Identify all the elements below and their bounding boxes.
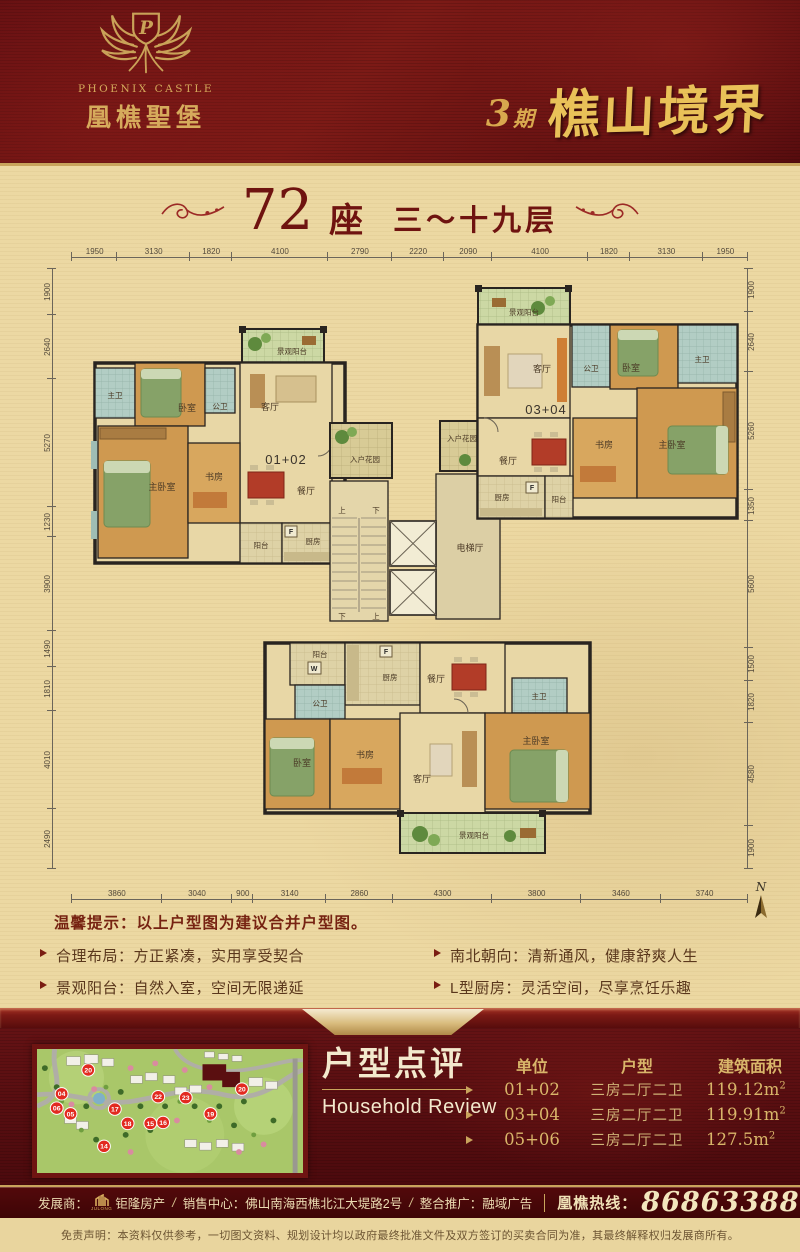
room-label-view-balcony: 景观阳台 bbox=[277, 346, 307, 356]
dim-seg: 2490 bbox=[40, 809, 56, 869]
main-area: 72 座 三～十九层 1950 3130 1820 4100 2790 2220… bbox=[0, 169, 800, 1008]
site-marker: 04 bbox=[55, 1088, 68, 1100]
hotline-number: 86863388 bbox=[641, 1187, 799, 1218]
dim-seg: 2090 bbox=[444, 245, 493, 261]
cell-layout: 三房二厅二卫 bbox=[574, 1104, 700, 1125]
unit-id-01-02: 01+02 bbox=[265, 452, 307, 467]
header-area: 建筑面积 bbox=[700, 1053, 800, 1077]
site-marker: 20 bbox=[82, 1064, 95, 1076]
floors-range: 三～十九层 bbox=[393, 183, 558, 239]
dim-label: 1810 bbox=[44, 681, 52, 699]
dim-seg: 3800 bbox=[492, 887, 580, 903]
dim-label: 2640 bbox=[44, 338, 52, 356]
room-label-kitchen: 厨房 bbox=[306, 536, 321, 546]
bullet-arrow-icon bbox=[434, 949, 441, 957]
svg-text:20: 20 bbox=[84, 1067, 92, 1074]
dim-label: 1900 bbox=[748, 282, 756, 300]
disclaimer-text: 免责声明：本资料仅供参考，一切图文资料、规划设计均以政府最终批准文件及双方签订的… bbox=[0, 1218, 800, 1252]
dim-seg: 4100 bbox=[492, 245, 587, 261]
review-section: 20 04 06 05 17 14 18 15 16 22 23 19 20 户… bbox=[0, 1028, 800, 1185]
dim-label: 1350 bbox=[748, 497, 756, 515]
dim-seg: 2640 bbox=[744, 312, 760, 372]
project-name: 樵山境界 bbox=[546, 67, 769, 148]
dim-seg: 900 bbox=[232, 887, 253, 903]
svg-text:04: 04 bbox=[58, 1091, 66, 1098]
dim-label: 3460 bbox=[612, 890, 630, 903]
bullet-arrow-icon bbox=[434, 981, 441, 989]
floor-plan-svg: 景观阳台 主卫 卧室 公卫 客厅 01+02 餐厅 主 bbox=[80, 276, 740, 871]
unit-id-03-04: 03+04 bbox=[525, 402, 567, 417]
bullet-arrow-icon bbox=[40, 949, 47, 957]
tip-item: 景观阳台：自然入室，空间无限递延 bbox=[40, 977, 370, 998]
room-label-living: 客厅 bbox=[533, 363, 551, 374]
hotline-label: 凰樵热线： bbox=[557, 1192, 637, 1213]
room-label-study: 书房 bbox=[595, 439, 613, 450]
review-table-row: 05+06 三房二厅二卫 127.5m2 bbox=[466, 1127, 800, 1152]
tip-text: 南北朝向：清新通风，健康舒爽人生 bbox=[450, 945, 698, 966]
dim-seg: 3130 bbox=[630, 245, 703, 261]
dim-label: 3130 bbox=[145, 248, 163, 261]
dim-label: 1900 bbox=[748, 839, 756, 857]
project-title-block: 3期 樵山境界 bbox=[486, 70, 768, 145]
stairs-up-label: 上 bbox=[338, 506, 346, 515]
dim-label: 2790 bbox=[351, 248, 369, 261]
svg-text:06: 06 bbox=[53, 1106, 61, 1113]
dim-seg: 3900 bbox=[40, 537, 56, 632]
room-label-balcony: 阳台 bbox=[254, 540, 269, 550]
divider-band bbox=[0, 1008, 800, 1028]
promo-label: 整合推广： bbox=[420, 1193, 483, 1212]
dim-label: 5270 bbox=[44, 434, 52, 452]
dim-seg: 3460 bbox=[581, 887, 661, 903]
stairs-down-label: 下 bbox=[372, 506, 380, 515]
cell-area: 119.12m2 bbox=[700, 1080, 800, 1099]
stairs-down-label: 下 bbox=[338, 612, 346, 621]
tip-text: 合理布局：方正紧凑，实用享受契合 bbox=[56, 945, 304, 966]
dim-label: 1820 bbox=[600, 248, 618, 261]
developer-name: 钜隆房产 bbox=[115, 1193, 165, 1212]
developer-label: 发展商： bbox=[38, 1193, 88, 1212]
bullet-arrow-icon bbox=[40, 981, 47, 989]
svg-text:14: 14 bbox=[100, 1144, 108, 1151]
room-label-master-bedroom: 主卧室 bbox=[658, 439, 685, 450]
review-table: 单位 户型 建筑面积 01+02 三房二厅二卫 119.12m2 03+04 三… bbox=[466, 1052, 800, 1152]
dim-label: 1820 bbox=[748, 693, 756, 711]
separator: / bbox=[409, 1196, 412, 1210]
dim-label: 4010 bbox=[44, 751, 52, 769]
separator: / bbox=[172, 1196, 175, 1210]
row-arrow-icon bbox=[466, 1136, 473, 1144]
header-layout: 户型 bbox=[574, 1053, 700, 1077]
julong-logo-icon: JULONG bbox=[91, 1194, 112, 1212]
dim-label: 3040 bbox=[188, 890, 206, 903]
unit-05-06: 阳台 W F 厨房 餐厅 公卫 05+06 卧室 书房 bbox=[265, 643, 590, 853]
sales-label: 销售中心： bbox=[183, 1193, 246, 1212]
dim-seg: 1820 bbox=[588, 245, 630, 261]
dim-seg: 1820 bbox=[744, 681, 760, 722]
room-label-balcony: 阳台 bbox=[313, 649, 328, 659]
dim-seg: 3130 bbox=[117, 245, 190, 261]
room-label-dining: 餐厅 bbox=[499, 455, 517, 466]
room-label-public-bath: 公卫 bbox=[584, 364, 599, 373]
room-label-dining: 餐厅 bbox=[297, 485, 315, 496]
svg-text:19: 19 bbox=[207, 1111, 215, 1118]
site-marker: 18 bbox=[121, 1117, 134, 1129]
dim-label: 1500 bbox=[748, 656, 756, 674]
dim-label: 2640 bbox=[748, 333, 756, 351]
poster-page: P PHOENIX CASTLE 凰樵聖堡 3期 樵山境界 bbox=[0, 0, 800, 1252]
dim-seg: 3740 bbox=[661, 887, 748, 903]
phoenix-logo-icon: P bbox=[90, 10, 202, 76]
review-title-rule bbox=[322, 1089, 470, 1090]
promo-name: 融域广告 bbox=[482, 1193, 532, 1212]
dim-label: 2090 bbox=[459, 248, 477, 261]
unit-03-04: 景观阳台 客厅 公卫 卧室 主卫 03+04 餐厅 书房 bbox=[478, 288, 737, 518]
dim-seg: 3040 bbox=[162, 887, 233, 903]
site-marker: 15 bbox=[144, 1117, 157, 1129]
dim-label: 4300 bbox=[434, 890, 452, 903]
building-number: 72 bbox=[242, 183, 313, 239]
brand-logo-block: P PHOENIX CASTLE 凰樵聖堡 bbox=[68, 10, 224, 134]
logo-monogram: P bbox=[138, 18, 154, 39]
plan-title: 72 座 三～十九层 bbox=[0, 179, 800, 242]
room-label-view-balcony: 景观阳台 bbox=[459, 830, 489, 840]
fridge-mark: F bbox=[530, 485, 535, 492]
dim-label: 1490 bbox=[44, 640, 52, 658]
site-marker: 19 bbox=[204, 1108, 217, 1120]
dim-seg: 5600 bbox=[744, 521, 760, 648]
dim-label: 1820 bbox=[202, 248, 220, 261]
tip-text: 景观阳台：自然入室，空间无限递延 bbox=[56, 977, 304, 998]
dim-seg: 1230 bbox=[40, 507, 56, 537]
tips-heading: 温馨提示：以上户型图为建议合并户型图。 bbox=[54, 911, 764, 933]
dim-seg: 1810 bbox=[40, 667, 56, 711]
svg-text:17: 17 bbox=[111, 1107, 119, 1114]
dim-label: 1230 bbox=[44, 513, 52, 531]
site-marker: 05 bbox=[64, 1108, 77, 1120]
dim-label: 2490 bbox=[44, 830, 52, 848]
site-marker: 17 bbox=[108, 1103, 121, 1115]
dim-seg: 1500 bbox=[744, 648, 760, 682]
flourish-left-icon bbox=[160, 197, 226, 225]
dim-label: 1900 bbox=[44, 283, 52, 301]
cell-unit: 05+06 bbox=[490, 1130, 574, 1149]
phase-label: 3期 bbox=[486, 93, 534, 145]
dim-seg: 3140 bbox=[253, 887, 326, 903]
cell-unit: 01+02 bbox=[490, 1080, 574, 1099]
review-table-header: 单位 户型 建筑面积 bbox=[466, 1052, 800, 1077]
vertical-divider bbox=[544, 1194, 545, 1212]
site-marker: 23 bbox=[179, 1091, 192, 1103]
cell-layout: 三房二厅二卫 bbox=[574, 1079, 700, 1100]
dim-label: 4100 bbox=[531, 248, 549, 261]
fridge-mark: F bbox=[289, 529, 294, 536]
svg-text:15: 15 bbox=[146, 1121, 154, 1128]
room-label-view-balcony: 景观阳台 bbox=[509, 307, 539, 317]
room-label-master-bedroom: 主卧室 bbox=[148, 481, 175, 492]
room-label-entry-garden: 入户花园 bbox=[447, 433, 477, 443]
fridge-mark: F bbox=[384, 649, 389, 656]
dimension-ruler-left: 1900 2640 5270 1230 3900 1490 1810 4010 … bbox=[40, 269, 56, 869]
cell-area: 119.91m2 bbox=[700, 1105, 800, 1124]
header: P PHOENIX CASTLE 凰樵聖堡 3期 樵山境界 bbox=[0, 0, 800, 166]
row-arrow-icon bbox=[466, 1086, 473, 1094]
building-suffix: 座 bbox=[329, 179, 363, 242]
cell-layout: 三房二厅二卫 bbox=[574, 1129, 700, 1150]
dimension-ruler-right: 1900 2640 5260 1350 5600 1500 1820 4580 … bbox=[744, 269, 760, 869]
room-label-living: 客厅 bbox=[413, 773, 431, 784]
svg-text:20: 20 bbox=[238, 1087, 246, 1094]
svg-text:23: 23 bbox=[182, 1095, 190, 1102]
room-label-public-bath: 公卫 bbox=[313, 699, 328, 708]
cell-area: 127.5m2 bbox=[700, 1130, 800, 1149]
tip-item: L型厨房：灵活空间，尽享烹饪乐趣 bbox=[434, 977, 764, 998]
svg-text:18: 18 bbox=[124, 1121, 132, 1128]
dim-seg: 1490 bbox=[40, 631, 56, 667]
dim-label: 3740 bbox=[696, 890, 714, 903]
review-table-row: 01+02 三房二厅二卫 119.12m2 bbox=[466, 1077, 800, 1102]
room-label-elevator-hall: 电梯厅 bbox=[456, 542, 483, 553]
dim-seg: 4100 bbox=[232, 245, 327, 261]
dim-seg: 5260 bbox=[744, 372, 760, 491]
dim-seg: 1900 bbox=[40, 269, 56, 315]
dim-seg: 1900 bbox=[744, 826, 760, 869]
dim-label: 3130 bbox=[657, 248, 675, 261]
tip-item: 合理布局：方正紧凑，实用享受契合 bbox=[40, 945, 370, 966]
dimension-ruler-bottom: 3860 3040 900 3140 2860 4300 3800 3460 3… bbox=[72, 887, 748, 903]
footer-bar: 发展商： JULONG 钜隆房产 / 销售中心： 佛山南海西樵北江大堤路2号 /… bbox=[0, 1185, 800, 1218]
row-arrow-icon bbox=[466, 1111, 473, 1119]
room-label-public-bath: 公卫 bbox=[213, 402, 228, 411]
room-label-master-bath: 主卫 bbox=[108, 390, 123, 400]
dim-label: 4100 bbox=[271, 248, 289, 261]
dim-label: 1950 bbox=[86, 248, 104, 261]
site-marker: 22 bbox=[152, 1090, 165, 1102]
dim-label: 2860 bbox=[350, 890, 368, 903]
site-marker: 14 bbox=[98, 1140, 111, 1152]
site-map-illustration: 20 04 06 05 17 14 18 15 16 22 23 19 20 bbox=[37, 1049, 303, 1173]
dim-label: 3800 bbox=[528, 890, 546, 903]
room-label-bedroom: 卧室 bbox=[622, 362, 640, 373]
tip-text: L型厨房：灵活空间，尽享烹饪乐趣 bbox=[450, 977, 691, 998]
flourish-right-icon bbox=[574, 197, 640, 225]
dim-label: 4580 bbox=[748, 765, 756, 783]
dim-seg: 1950 bbox=[72, 245, 117, 261]
dim-seg: 1820 bbox=[190, 245, 232, 261]
dim-seg: 1350 bbox=[744, 490, 760, 521]
dim-label: 2220 bbox=[409, 248, 427, 261]
dim-label: 1950 bbox=[716, 248, 734, 261]
dim-seg: 2220 bbox=[392, 245, 444, 261]
dim-seg: 2860 bbox=[326, 887, 392, 903]
brand-name-en: PHOENIX CASTLE bbox=[68, 83, 224, 95]
room-label-master-bath: 主卫 bbox=[695, 354, 710, 364]
hotline-block: 凰樵热线： 86863388 bbox=[532, 1187, 799, 1218]
site-map: 20 04 06 05 17 14 18 15 16 22 23 19 20 bbox=[32, 1044, 308, 1178]
sales-address: 佛山南海西樵北江大堤路2号 bbox=[245, 1193, 402, 1212]
dim-seg: 5270 bbox=[40, 379, 56, 507]
dim-seg: 4300 bbox=[393, 887, 493, 903]
dim-label: 5260 bbox=[748, 422, 756, 440]
site-marker: 06 bbox=[50, 1102, 63, 1114]
julong-logo-text: JULONG bbox=[91, 1207, 112, 1212]
brand-name-cn: 凰樵聖堡 bbox=[68, 98, 224, 134]
dim-label: 900 bbox=[236, 890, 249, 903]
unit-01-02: 景观阳台 主卫 卧室 公卫 客厅 01+02 餐厅 主 bbox=[91, 329, 345, 563]
dim-label: 3900 bbox=[44, 575, 52, 593]
dim-seg: 2640 bbox=[40, 315, 56, 379]
header-unit: 单位 bbox=[490, 1053, 574, 1077]
dimension-ruler-top: 1950 3130 1820 4100 2790 2220 2090 4100 … bbox=[72, 245, 748, 261]
site-marker: 20 bbox=[236, 1083, 249, 1095]
dim-seg: 1900 bbox=[744, 269, 760, 312]
cell-unit: 03+04 bbox=[490, 1105, 574, 1124]
room-label-bedroom: 卧室 bbox=[178, 402, 196, 413]
room-label-study: 书房 bbox=[356, 749, 374, 760]
svg-text:05: 05 bbox=[67, 1111, 75, 1118]
room-label-bedroom: 卧室 bbox=[293, 757, 311, 768]
svg-text:16: 16 bbox=[159, 1120, 167, 1127]
room-label-study: 书房 bbox=[205, 471, 223, 482]
dim-seg: 4010 bbox=[40, 711, 56, 808]
room-label-kitchen: 厨房 bbox=[383, 672, 398, 682]
site-marker: 16 bbox=[157, 1116, 170, 1128]
dim-seg: 2790 bbox=[328, 245, 393, 261]
room-label-entry-garden: 入户花园 bbox=[350, 454, 380, 464]
washer-mark: W bbox=[311, 666, 318, 673]
dim-label: 3140 bbox=[281, 890, 299, 903]
room-label-master-bedroom: 主卧室 bbox=[522, 735, 549, 746]
dim-seg: 3860 bbox=[72, 887, 162, 903]
room-label-kitchen: 厨房 bbox=[495, 492, 510, 502]
north-label: N bbox=[756, 880, 767, 894]
dim-label: 3860 bbox=[108, 890, 126, 903]
stairs-up-label: 上 bbox=[372, 612, 380, 621]
room-label-dining: 餐厅 bbox=[427, 673, 445, 684]
core-stairs-elevators: 入户花园 入户花园 电梯厅 上 下 下 上 bbox=[330, 421, 500, 621]
dim-label: 5600 bbox=[748, 575, 756, 593]
tip-item: 南北朝向：清新通风，健康舒爽人生 bbox=[434, 945, 764, 966]
review-table-row: 03+04 三房二厅二卫 119.91m2 bbox=[466, 1102, 800, 1127]
room-label-living: 客厅 bbox=[261, 401, 279, 412]
room-label-master-bath: 主卫 bbox=[532, 691, 547, 701]
dim-seg: 1950 bbox=[703, 245, 748, 261]
dim-seg: 4580 bbox=[744, 723, 760, 827]
room-label-balcony: 阳台 bbox=[552, 494, 567, 504]
svg-text:22: 22 bbox=[154, 1094, 162, 1101]
